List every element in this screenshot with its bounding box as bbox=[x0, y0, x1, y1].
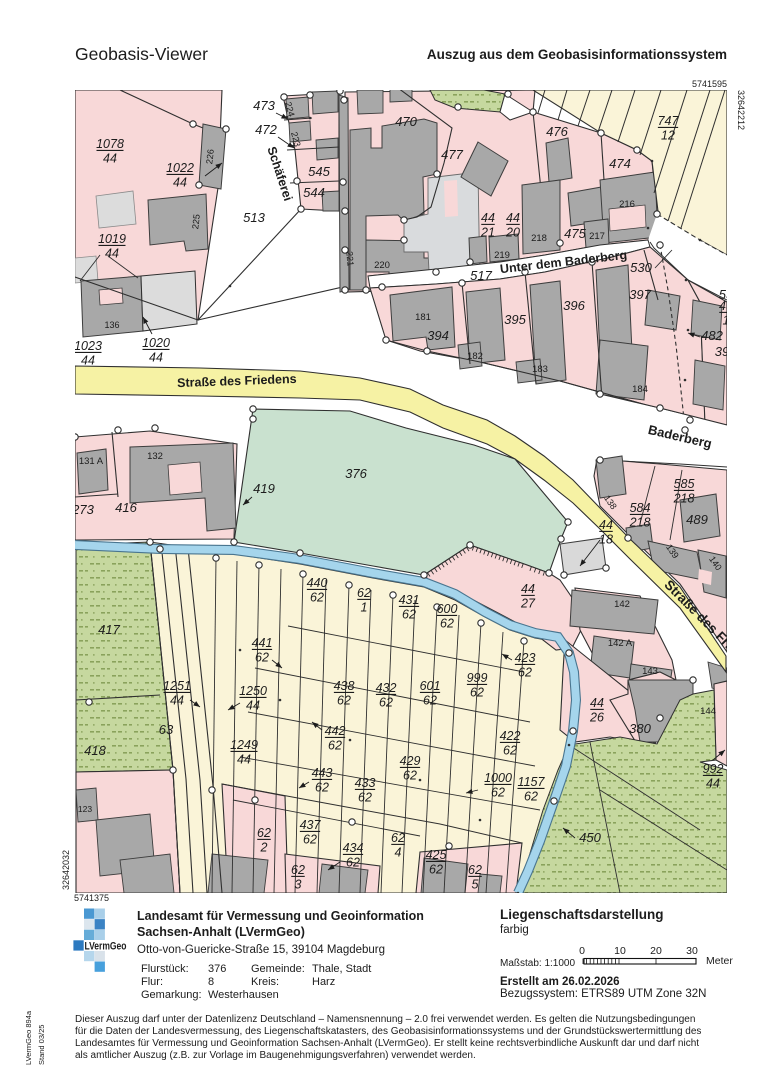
svg-text:217: 217 bbox=[589, 231, 605, 242]
svg-text:Meter: Meter bbox=[706, 955, 733, 967]
svg-text:LVermGeo 894a: LVermGeo 894a bbox=[24, 1010, 33, 1065]
svg-text:1078: 1078 bbox=[96, 137, 124, 151]
svg-text:44: 44 bbox=[173, 176, 187, 190]
svg-text:432: 432 bbox=[376, 681, 397, 695]
svg-text:5: 5 bbox=[472, 878, 479, 892]
svg-text:425: 425 bbox=[426, 848, 447, 862]
svg-text:747: 747 bbox=[658, 114, 680, 128]
svg-text:20: 20 bbox=[650, 945, 662, 957]
svg-text:517: 517 bbox=[470, 268, 492, 283]
svg-text:10: 10 bbox=[614, 945, 626, 957]
svg-text:1019: 1019 bbox=[98, 232, 126, 246]
svg-text:62: 62 bbox=[503, 744, 517, 758]
svg-text:39: 39 bbox=[715, 344, 729, 359]
svg-text:225: 225 bbox=[190, 214, 202, 230]
svg-text:44: 44 bbox=[246, 699, 260, 713]
svg-text:472: 472 bbox=[255, 122, 277, 137]
svg-text:32642032: 32642032 bbox=[61, 850, 71, 890]
svg-text:474: 474 bbox=[609, 156, 631, 171]
svg-text:62: 62 bbox=[391, 831, 405, 845]
svg-text:416: 416 bbox=[115, 500, 137, 515]
svg-text:216: 216 bbox=[619, 199, 635, 210]
svg-text:32642212: 32642212 bbox=[736, 90, 746, 130]
svg-text:440: 440 bbox=[307, 576, 328, 590]
svg-text:43: 43 bbox=[719, 299, 733, 313]
svg-text:142 A: 142 A bbox=[608, 638, 633, 649]
svg-text:27: 27 bbox=[520, 597, 536, 611]
svg-text:182: 182 bbox=[467, 351, 483, 362]
svg-text:44: 44 bbox=[481, 211, 495, 225]
svg-text:Sachsen-Anhalt (LVermGeo): Sachsen-Anhalt (LVermGeo) bbox=[137, 925, 305, 939]
svg-text:Landesamt für Vermessung und G: Landesamt für Vermessung und Geoinformat… bbox=[137, 909, 424, 923]
svg-text:437: 437 bbox=[300, 818, 322, 832]
svg-text:5741375: 5741375 bbox=[74, 893, 109, 903]
svg-text:62: 62 bbox=[440, 617, 454, 631]
svg-text:1: 1 bbox=[361, 601, 368, 615]
svg-text:Dieser Auszug darf unter der D: Dieser Auszug darf unter der Datenlizenz… bbox=[75, 1014, 695, 1025]
svg-text:Maßstab: 1:1000: Maßstab: 1:1000 bbox=[500, 958, 575, 969]
svg-text:44: 44 bbox=[149, 351, 163, 365]
svg-text:218: 218 bbox=[531, 233, 547, 244]
svg-text:181: 181 bbox=[415, 312, 431, 323]
svg-text:184: 184 bbox=[632, 384, 648, 395]
svg-text:62: 62 bbox=[524, 790, 538, 804]
svg-text:0: 0 bbox=[579, 945, 585, 957]
svg-text:44: 44 bbox=[237, 753, 251, 767]
svg-text:136: 136 bbox=[104, 320, 119, 330]
svg-text:143: 143 bbox=[642, 666, 658, 677]
svg-text:585: 585 bbox=[674, 477, 695, 491]
svg-text:62: 62 bbox=[402, 608, 416, 622]
svg-text:221: 221 bbox=[344, 251, 355, 267]
svg-text:123: 123 bbox=[78, 804, 92, 814]
svg-text:397: 397 bbox=[629, 287, 651, 302]
svg-text:44: 44 bbox=[506, 211, 520, 225]
svg-text:1250: 1250 bbox=[239, 684, 267, 698]
svg-text:144: 144 bbox=[700, 706, 716, 717]
svg-text:21: 21 bbox=[480, 226, 495, 240]
svg-text:1000: 1000 bbox=[484, 771, 512, 785]
svg-text:992: 992 bbox=[703, 762, 724, 776]
svg-text:482: 482 bbox=[701, 328, 723, 343]
svg-text:62: 62 bbox=[403, 769, 417, 783]
svg-text:544: 544 bbox=[303, 185, 325, 200]
svg-text:Erstellt am 26.02.2026: Erstellt am 26.02.2026 bbox=[500, 976, 620, 988]
svg-text:429: 429 bbox=[400, 754, 421, 768]
svg-text:62: 62 bbox=[468, 863, 482, 877]
svg-text:2: 2 bbox=[260, 841, 268, 855]
svg-text:473: 473 bbox=[253, 98, 275, 113]
svg-text:Landesamtes für Vermessung und: Landesamtes für Vermessung und Geoinform… bbox=[75, 1038, 699, 1049]
svg-text:62: 62 bbox=[470, 686, 484, 700]
svg-text:30: 30 bbox=[686, 945, 698, 957]
svg-text:476: 476 bbox=[546, 124, 568, 139]
svg-text:Gemarkung:: Gemarkung: bbox=[141, 989, 202, 1001]
svg-text:62: 62 bbox=[337, 694, 351, 708]
svg-text:530: 530 bbox=[630, 260, 652, 275]
svg-text:443: 443 bbox=[312, 766, 333, 780]
svg-text:417: 417 bbox=[98, 622, 120, 637]
svg-text:Flur:: Flur: bbox=[141, 976, 163, 988]
svg-text:1022: 1022 bbox=[166, 161, 194, 175]
svg-text:Liegenschaftsdarstellung: Liegenschaftsdarstellung bbox=[500, 907, 664, 922]
svg-text:1023: 1023 bbox=[74, 339, 102, 353]
svg-text:44: 44 bbox=[170, 694, 184, 708]
svg-text:Auszug aus dem Geobasisinforma: Auszug aus dem Geobasisinformationssyste… bbox=[427, 47, 727, 62]
svg-text:431: 431 bbox=[399, 593, 420, 607]
svg-text:218: 218 bbox=[673, 492, 695, 506]
svg-text:62: 62 bbox=[429, 863, 443, 877]
svg-text:62: 62 bbox=[346, 856, 360, 870]
svg-text:475: 475 bbox=[564, 226, 586, 241]
svg-text:44: 44 bbox=[521, 582, 535, 596]
svg-text:601: 601 bbox=[420, 679, 441, 693]
svg-text:LVermGeo: LVermGeo bbox=[85, 940, 127, 952]
svg-text:Harz: Harz bbox=[312, 976, 335, 988]
svg-text:395: 395 bbox=[504, 312, 526, 327]
svg-text:Kreis:: Kreis: bbox=[251, 976, 279, 988]
svg-text:1157: 1157 bbox=[518, 775, 546, 789]
svg-text:489: 489 bbox=[686, 512, 708, 527]
svg-text:273: 273 bbox=[71, 502, 94, 517]
svg-text:62: 62 bbox=[518, 666, 532, 680]
svg-text:438: 438 bbox=[334, 679, 355, 693]
svg-text:442: 442 bbox=[325, 724, 346, 738]
svg-text:Geobasis-Viewer: Geobasis-Viewer bbox=[75, 44, 208, 64]
svg-text:396: 396 bbox=[563, 298, 585, 313]
svg-text:12: 12 bbox=[661, 129, 675, 143]
svg-text:62: 62 bbox=[357, 586, 371, 600]
svg-text:470: 470 bbox=[395, 114, 417, 129]
svg-text:Gemeinde:: Gemeinde: bbox=[251, 963, 305, 975]
svg-text:3: 3 bbox=[295, 878, 302, 892]
svg-text:62: 62 bbox=[358, 791, 372, 805]
svg-text:513: 513 bbox=[243, 210, 265, 225]
svg-text:62: 62 bbox=[379, 696, 393, 710]
svg-text:62: 62 bbox=[328, 739, 342, 753]
svg-text:Otto-von-Guericke-Straße 15, 3: Otto-von-Guericke-Straße 15, 39104 Magde… bbox=[137, 944, 385, 956]
svg-text:434: 434 bbox=[343, 841, 364, 855]
svg-text:44: 44 bbox=[706, 777, 720, 791]
svg-text:131 A: 131 A bbox=[79, 456, 104, 467]
svg-text:26: 26 bbox=[589, 711, 604, 725]
svg-text:als amtlicher Auszug (z.B. zur: als amtlicher Auszug (z.B. zur Vorlage i… bbox=[75, 1050, 476, 1061]
svg-text:62: 62 bbox=[315, 781, 329, 795]
svg-text:62: 62 bbox=[255, 651, 269, 665]
svg-text:62: 62 bbox=[491, 786, 505, 800]
svg-text:Westerhausen: Westerhausen bbox=[208, 989, 279, 1001]
svg-text:Stand 03/25: Stand 03/25 bbox=[37, 1025, 46, 1065]
svg-text:1249: 1249 bbox=[230, 738, 258, 752]
svg-text:62: 62 bbox=[423, 694, 437, 708]
svg-text:18: 18 bbox=[599, 533, 613, 547]
svg-text:44: 44 bbox=[103, 152, 117, 166]
svg-text:20: 20 bbox=[505, 226, 520, 240]
svg-text:418: 418 bbox=[84, 743, 106, 758]
svg-text:220: 220 bbox=[374, 260, 390, 271]
svg-text:380: 380 bbox=[629, 721, 651, 736]
svg-text:63: 63 bbox=[159, 722, 174, 737]
svg-text:584: 584 bbox=[630, 501, 651, 515]
svg-text:441: 441 bbox=[252, 636, 273, 650]
svg-text:62: 62 bbox=[303, 833, 317, 847]
svg-text:62: 62 bbox=[310, 591, 324, 605]
svg-text:1251: 1251 bbox=[163, 679, 191, 693]
svg-text:4: 4 bbox=[395, 846, 402, 860]
svg-text:376: 376 bbox=[208, 963, 226, 975]
svg-text:423: 423 bbox=[515, 651, 536, 665]
svg-text:226: 226 bbox=[204, 149, 216, 165]
svg-text:218: 218 bbox=[629, 516, 651, 530]
svg-text:142: 142 bbox=[614, 599, 630, 610]
svg-text:Flurstück:: Flurstück: bbox=[141, 963, 189, 975]
svg-text:5741595: 5741595 bbox=[692, 79, 727, 89]
svg-text:394: 394 bbox=[427, 328, 449, 343]
svg-text:183: 183 bbox=[532, 364, 548, 375]
svg-text:Bezugssystem: ETRS89 UTM Zone: Bezugssystem: ETRS89 UTM Zone 32N bbox=[500, 988, 706, 1000]
svg-text:419: 419 bbox=[253, 481, 275, 496]
svg-text:44: 44 bbox=[590, 696, 604, 710]
svg-text:132: 132 bbox=[147, 451, 163, 462]
svg-text:44: 44 bbox=[81, 354, 95, 368]
svg-text:1020: 1020 bbox=[142, 336, 170, 350]
svg-text:Thale, Stadt: Thale, Stadt bbox=[312, 963, 371, 975]
svg-text:477: 477 bbox=[441, 147, 463, 162]
svg-text:farbig: farbig bbox=[500, 924, 529, 936]
svg-text:376: 376 bbox=[345, 466, 367, 481]
svg-text:422: 422 bbox=[500, 729, 521, 743]
svg-text:44: 44 bbox=[599, 518, 613, 532]
svg-text:219: 219 bbox=[494, 250, 510, 261]
svg-text:62: 62 bbox=[257, 826, 271, 840]
svg-text:600: 600 bbox=[437, 602, 458, 616]
svg-text:999: 999 bbox=[467, 671, 488, 685]
svg-text:62: 62 bbox=[291, 863, 305, 877]
svg-text:545: 545 bbox=[308, 164, 330, 179]
svg-text:433: 433 bbox=[355, 776, 376, 790]
svg-text:8: 8 bbox=[208, 976, 214, 988]
svg-text:1: 1 bbox=[723, 314, 730, 328]
svg-text:450: 450 bbox=[579, 830, 601, 845]
svg-text:für die Daten der Landesvermes: für die Daten der Landesvermessung, des … bbox=[75, 1026, 701, 1037]
